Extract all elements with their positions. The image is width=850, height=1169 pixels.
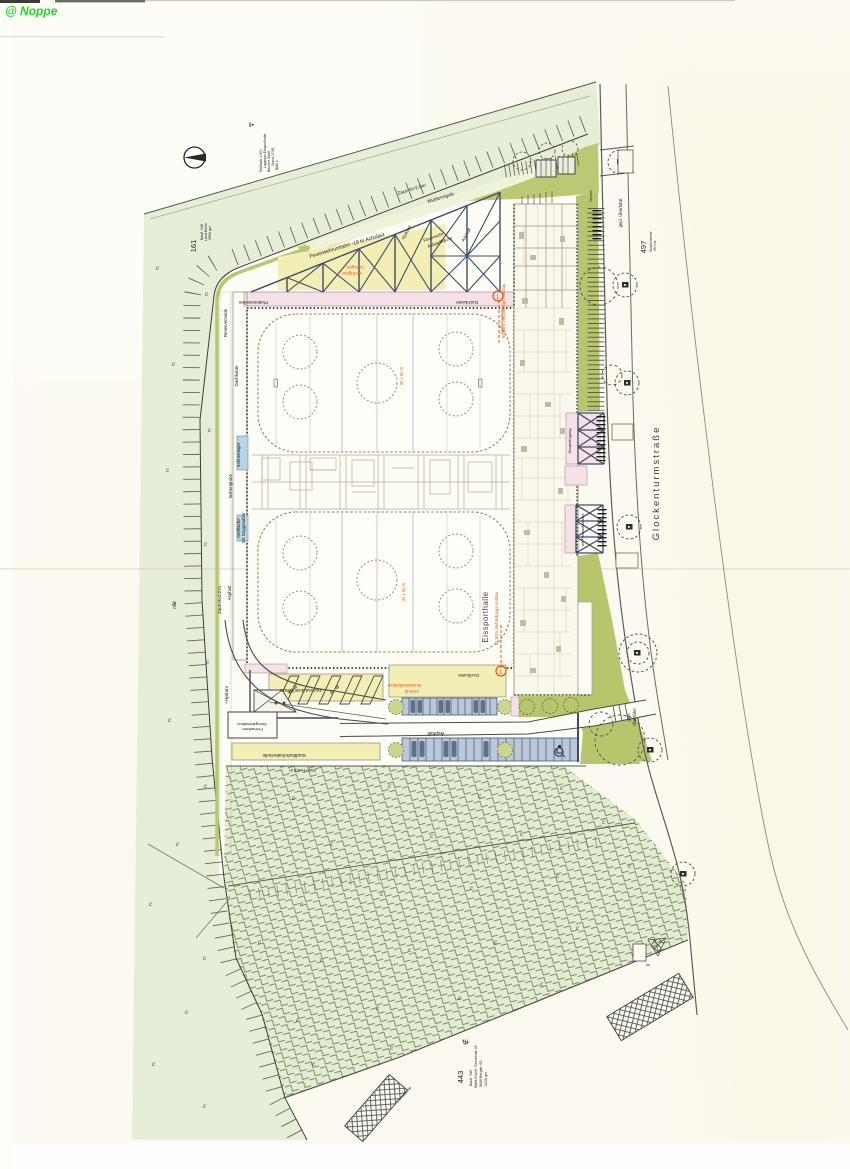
- svg-text:Wald-Grünfl. Gemeinde 40: Wald-Grünfl. Gemeinde 40: [474, 1045, 478, 1088]
- svg-text:Blatt 2: Blatt 2: [275, 160, 279, 170]
- svg-text:Reservemulde: Reservemulde: [223, 308, 228, 337]
- svg-text:41,50m Verbindungs-Vorbau: 41,50m Verbindungs-Vorbau: [494, 591, 499, 645]
- svg-text:30 x 60 m: 30 x 60 m: [401, 582, 406, 601]
- svg-text:Glockenturmstraße: Glockenturmstraße: [651, 426, 662, 541]
- svg-text:Haupteingang: Haupteingang: [567, 429, 572, 454]
- svg-text:30 x 60 m: 30 x 60 m: [399, 366, 404, 385]
- svg-text:1220 qm: 1220 qm: [484, 1072, 488, 1086]
- svg-text:verfügbar: verfügbar: [341, 270, 362, 276]
- svg-text:Vorfeld: Vorfeld: [404, 689, 419, 694]
- svg-text:Stadtbahnhaltestelle: Stadtbahnhaltestelle: [262, 752, 306, 758]
- svg-text:@ Noppe: @ Noppe: [5, 4, 58, 18]
- svg-text:‖•: ‖•: [249, 122, 255, 129]
- svg-text:35,0 m: 35,0 m: [653, 240, 657, 251]
- svg-text:Ein-/Ausgang: Ein-/Ausgang: [499, 310, 504, 334]
- svg-text:mar: mar: [172, 601, 177, 609]
- svg-text:Asphalt: Asphalt: [227, 585, 232, 600]
- svg-text:‖: ‖: [646, 964, 652, 966]
- svg-text:Plattenstreifen: Plattenstreifen: [238, 300, 268, 305]
- svg-text:497: 497: [639, 241, 648, 254]
- svg-text:Busabstellplätze: Busabstellplätze: [387, 683, 421, 688]
- svg-text:161: 161: [189, 240, 198, 253]
- svg-text:Dachkante: Dachkante: [456, 300, 478, 305]
- svg-text:Anlagen: Anlagen: [346, 264, 364, 270]
- svg-text:Dachkante: Dachkante: [234, 365, 239, 387]
- svg-text:Eissporthalle: Eissporthalle: [481, 591, 490, 642]
- svg-text:443: 443: [456, 1071, 465, 1084]
- svg-text:Baufl. SW: Baufl. SW: [469, 1069, 473, 1086]
- svg-text:+Hydrant: +Hydrant: [224, 685, 229, 704]
- svg-text:Zaun H=2,0 m: Zaun H=2,0 m: [289, 768, 316, 773]
- svg-text:mit Fahrradständer: mit Fahrradständer: [581, 513, 585, 546]
- svg-text:Schneelager: Schneelager: [236, 442, 241, 467]
- svg-text:Hecke: Hecke: [588, 190, 593, 202]
- svg-text:Dachkante: Dachkante: [457, 673, 479, 678]
- svg-text:Zweiradabstellplätze: Zweiradabstellplätze: [280, 688, 322, 693]
- svg-text:gepl. Überfahrt: gepl. Überfahrt: [618, 198, 623, 228]
- svg-text:9806 Bergstr. 63: 9806 Bergstr. 63: [479, 1061, 483, 1087]
- svg-text:mit Duggstabler: mit Duggstabler: [241, 512, 246, 543]
- svg-text:Asphalt: Asphalt: [427, 730, 444, 736]
- svg-text:gepl.: gepl.: [626, 712, 631, 721]
- svg-text:3500 qm: 3500 qm: [208, 226, 212, 240]
- svg-text:Bohreigrube: Bohreigrube: [228, 473, 233, 497]
- svg-text:Überfahrt: Überfahrt: [632, 707, 637, 725]
- svg-text:Übergabestation: Übergabestation: [237, 722, 266, 727]
- svg-text:Zaun H=2,0 m: Zaun H=2,0 m: [217, 586, 222, 614]
- svg-text:∉: ∉: [462, 1039, 470, 1045]
